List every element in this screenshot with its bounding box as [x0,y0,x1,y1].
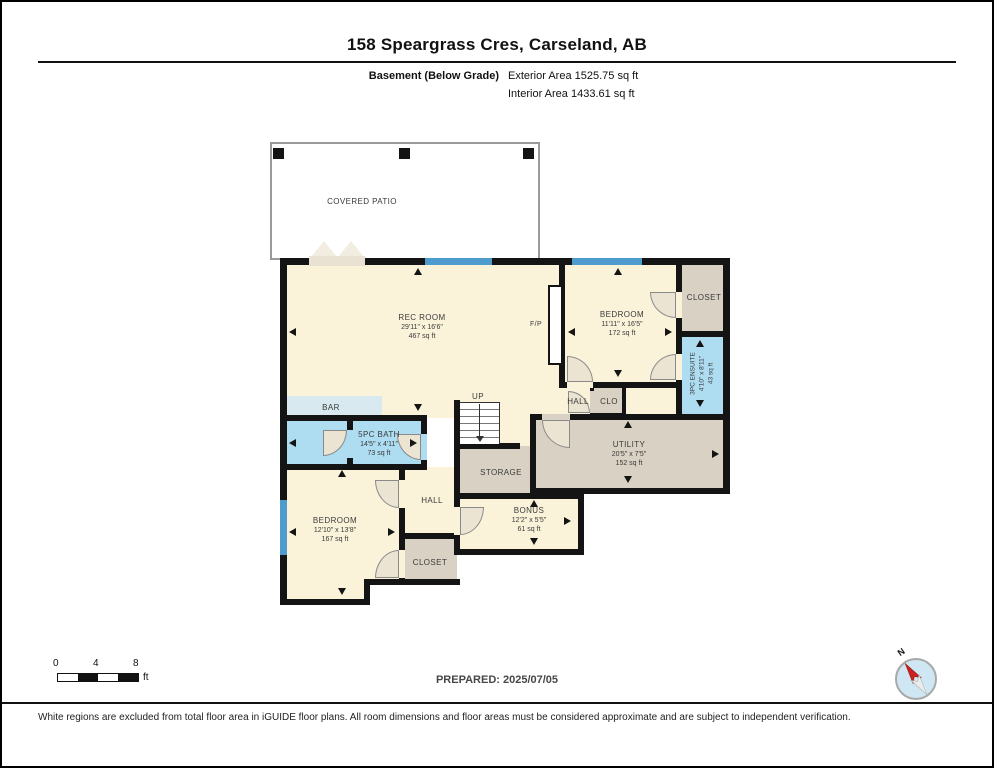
wall [280,415,427,421]
dimension-arrow [289,328,296,336]
dimension-arrow [624,476,632,483]
wall [530,414,536,494]
dimension-arrow [568,328,575,336]
room-label-utility: UTILITY 20'5" x 7'5" 152 sq ft [569,440,689,468]
dimension-arrow [530,538,538,545]
dimension-arrow [410,439,417,447]
dimension-arrow [289,439,296,447]
room-label-fireplace: F/P [524,321,548,328]
staircase [460,402,500,444]
patio-post [523,148,534,159]
wall [532,488,730,494]
room-label-bonus: BONUS 12'2" x 5'5" 61 sq ft [469,506,589,534]
room-label-bedroom-upper: BEDROOM 11'11" x 16'5" 172 sq ft [562,310,682,338]
stair-direction-arrow [476,436,484,442]
window [425,258,492,265]
prepared-date: PREPARED: 2025/07/05 [2,674,992,686]
dimension-arrow [696,340,704,347]
dimension-arrow [614,370,622,377]
fireplace [548,285,563,365]
room-label-hall-lower: HALL [407,496,457,505]
footer-divider [2,702,994,704]
wall [364,579,460,585]
dimension-arrow [338,588,346,595]
interior-area: Interior Area 1433.61 sq ft [508,88,635,100]
dimension-arrow [712,450,719,458]
window [572,258,642,265]
rec-room-floor [283,261,727,418]
dimension-arrow [530,500,538,507]
dimension-arrow [414,404,422,411]
dimension-arrow [338,470,346,477]
door-opening [399,480,405,508]
scale-tick-8: 8 [133,658,139,669]
wall [454,549,584,555]
room-label-closet-lower: CLOSET [402,558,458,567]
dimension-arrow [696,400,704,407]
door-opening [676,354,682,380]
dimension-arrow [289,528,296,536]
dimension-arrow [614,268,622,275]
floor-label: Basement (Below Grade) [242,70,499,82]
exterior-area: Exterior Area 1525.75 sq ft [508,70,638,82]
wall [280,599,370,605]
door-opening [309,256,365,266]
dimension-arrow [624,421,632,428]
dimension-arrow [665,328,672,336]
dimension-arrow [564,517,571,525]
room-label-bar: BAR [301,403,361,412]
dimension-arrow [388,528,395,536]
compass-icon [892,655,940,703]
header-divider [38,61,956,63]
disclaimer-text: White regions are excluded from total fl… [38,712,851,723]
patio-post [399,148,410,159]
stair-direction-line [479,404,480,437]
patio-post [273,148,284,159]
room-label-rec-room: REC ROOM 29'11" x 16'6" 467 sq ft [362,313,482,341]
room-label-covered-patio: COVERED PATIO [302,197,422,206]
door-opening [567,382,593,388]
room-label-stairs-up: UP [458,392,498,401]
room-label-closet-upper: CLOSET [676,293,732,302]
room-label-clo: CLO [595,397,623,406]
wall [399,533,460,539]
wall [676,258,682,418]
dimension-arrow [414,268,422,275]
room-label-storage: STORAGE [463,468,539,477]
room-label-bath: 5PC BATH 14'5" x 4'11" 73 sq ft [319,430,439,458]
wall [590,413,626,417]
scale-tick-4: 4 [93,658,99,669]
scale-tick-0: 0 [53,658,59,669]
page-title: 158 Speargrass Cres, Carseland, AB [2,35,992,55]
floor-plan-page: 158 Speargrass Cres, Carseland, AB Basem… [0,0,994,768]
